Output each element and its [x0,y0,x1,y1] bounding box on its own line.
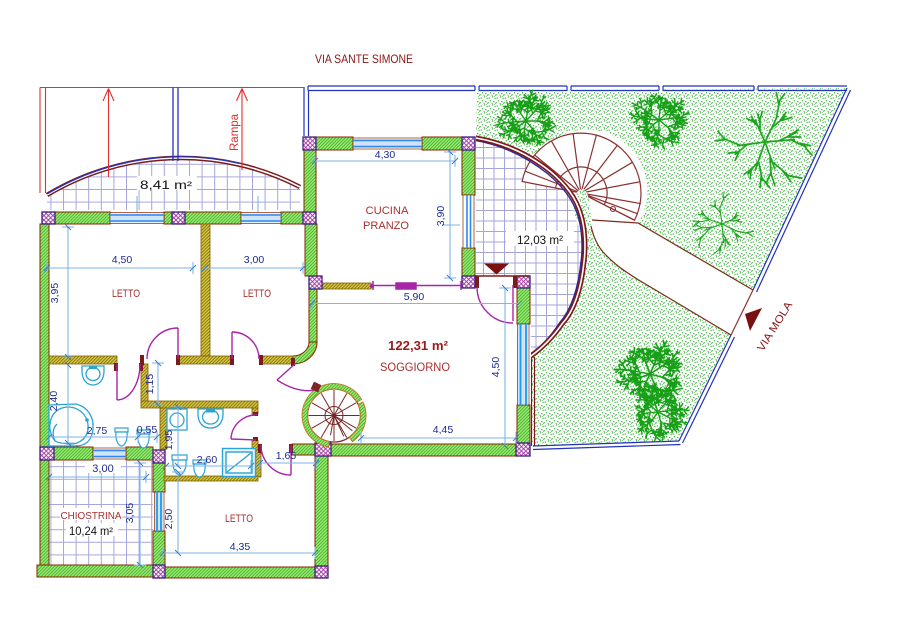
svg-text:10,24 m²: 10,24 m² [69,526,113,538]
svg-text:12,03 m²: 12,03 m² [517,233,563,247]
svg-text:2,75: 2,75 [87,425,108,437]
svg-text:LETTO: LETTO [243,288,271,300]
svg-text:4,50: 4,50 [112,254,133,266]
svg-text:3,00: 3,00 [92,463,113,475]
svg-text:4,30: 4,30 [375,149,396,161]
svg-text:4,45: 4,45 [433,424,454,436]
svg-text:1,95: 1,95 [163,430,175,451]
svg-text:4,35: 4,35 [230,541,251,553]
svg-text:LETTO: LETTO [225,513,253,525]
svg-text:PRANZO: PRANZO [363,220,409,232]
svg-text:3,95: 3,95 [49,283,61,304]
svg-text:CUCINA: CUCINA [366,205,410,217]
svg-text:3,90: 3,90 [435,206,447,227]
svg-text:3,00: 3,00 [244,254,265,266]
svg-text:CHIOSTRINA: CHIOSTRINA [61,510,122,522]
svg-text:122,31 m²: 122,31 m² [388,339,448,353]
svg-text:1,65: 1,65 [276,450,297,462]
svg-text:SOGGIORNO: SOGGIORNO [380,362,450,374]
svg-text:8,41 m²: 8,41 m² [140,180,192,192]
svg-text:3,05: 3,05 [124,503,136,524]
svg-text:1,15: 1,15 [144,374,156,395]
svg-text:4,50: 4,50 [490,357,502,378]
svg-text:Rampa: Rampa [229,113,241,151]
svg-text:2,50: 2,50 [163,509,175,530]
svg-text:0,55: 0,55 [137,424,158,436]
svg-text:2,40: 2,40 [48,391,60,412]
svg-text:VIA SANTE SIMONE: VIA SANTE SIMONE [315,54,413,66]
svg-text:LETTO: LETTO [112,288,140,300]
svg-text:2,60: 2,60 [197,454,218,466]
svg-text:5,90: 5,90 [404,291,425,303]
